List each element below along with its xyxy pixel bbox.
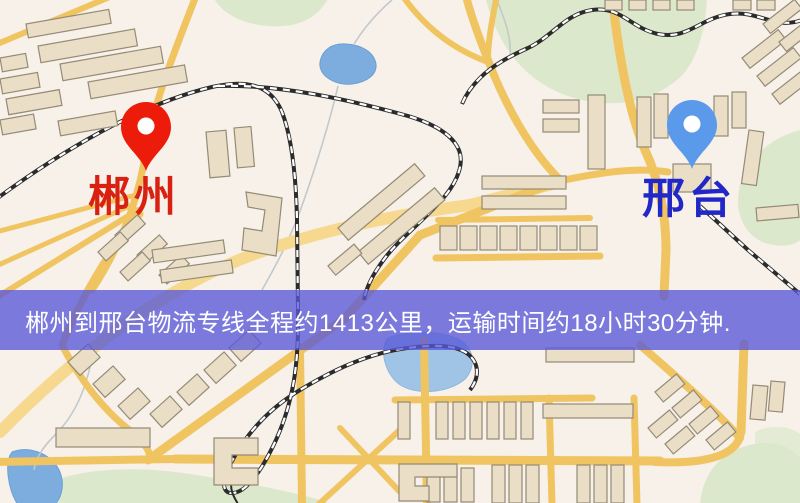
route-info-text: 郴州到邢台物流专线全程约1413公里，运输时间约18小时30分钟. — [0, 303, 731, 338]
route-info-banner: 郴州到邢台物流专线全程约1413公里，运输时间约18小时30分钟. — [0, 290, 800, 350]
destination-pin-icon[interactable] — [667, 100, 717, 169]
origin-label: 郴州 — [88, 176, 180, 218]
map-canvas[interactable] — [0, 0, 800, 503]
map-screenshot: 郴州 邢台 郴州到邢台物流专线全程约1413公里，运输时间约18小时30分钟. — [0, 0, 800, 503]
destination-label: 邢台 — [642, 178, 736, 221]
origin-pin-icon[interactable] — [121, 102, 171, 171]
